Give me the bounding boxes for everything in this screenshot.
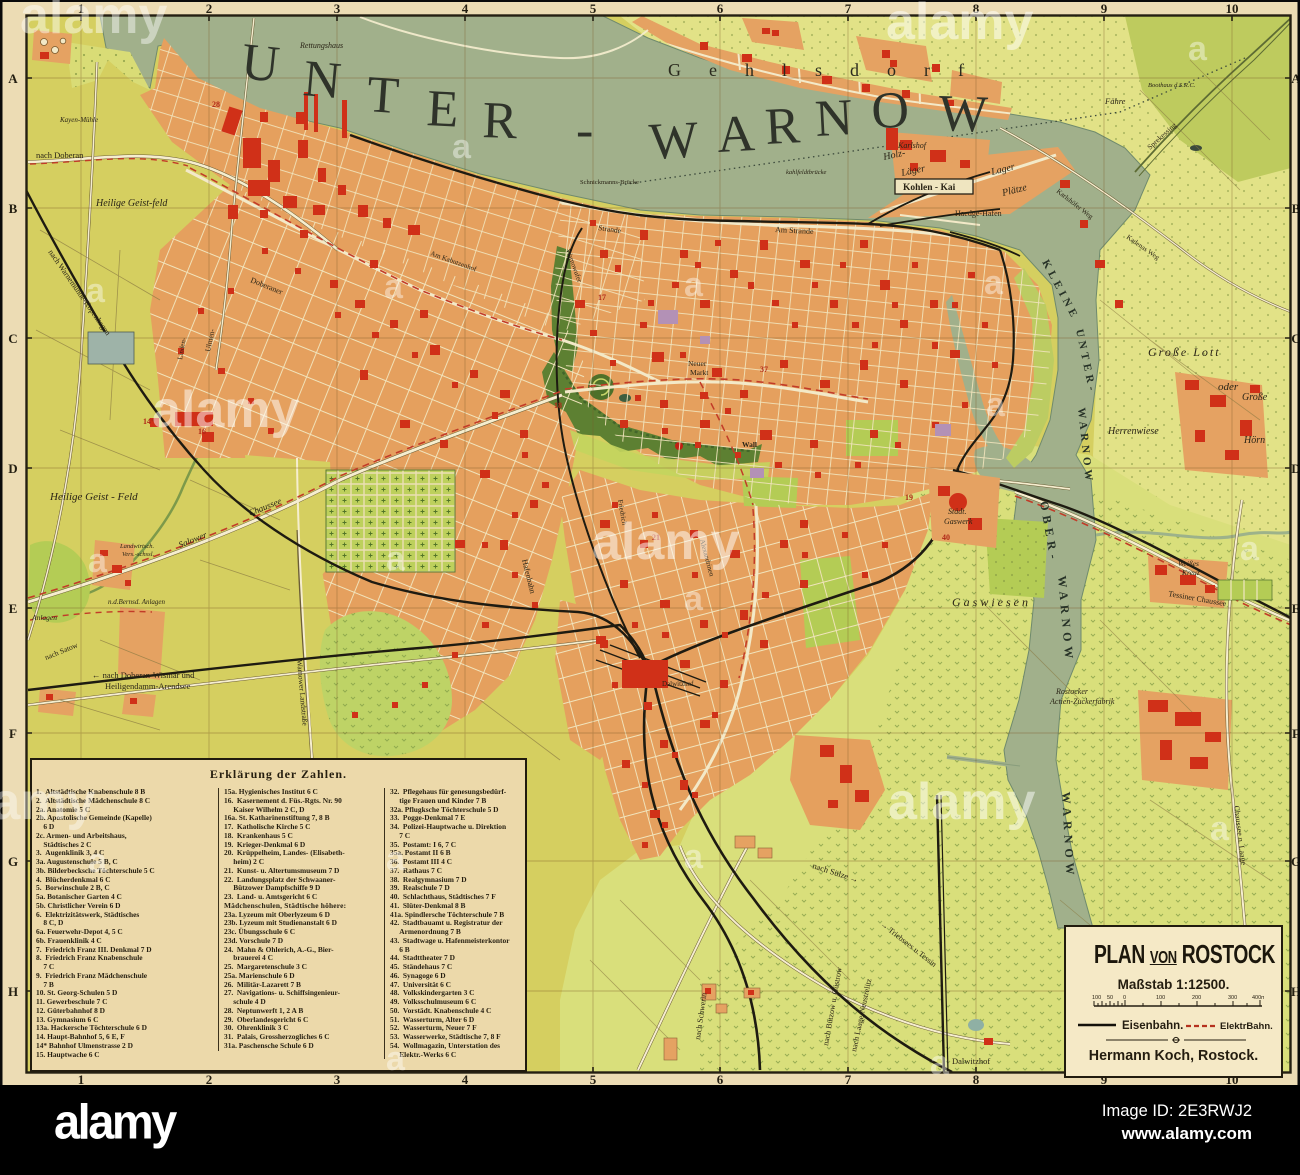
svg-text:50: 50 xyxy=(1107,995,1113,1001)
svg-text:18: 18 xyxy=(554,401,562,410)
svg-text:E: E xyxy=(425,80,460,139)
svg-text:100: 100 xyxy=(1156,995,1165,1001)
svg-text:2: 2 xyxy=(206,1,213,16)
svg-text:Dalwitzhof: Dalwitzhof xyxy=(952,1056,990,1066)
svg-text:9: 9 xyxy=(1101,1,1108,16)
svg-text:Actien-Zuckerfabrik: Actien-Zuckerfabrik xyxy=(1049,697,1115,706)
svg-text:Wall: Wall xyxy=(742,440,757,449)
svg-text:5: 5 xyxy=(590,1072,597,1085)
svg-text:Schnickmanns-Brücke: Schnickmanns-Brücke xyxy=(580,179,639,186)
svg-text:Vers.-schssl.: Vers.-schssl. xyxy=(122,551,155,558)
svg-text:Weißes: Weißes xyxy=(1178,559,1199,568)
svg-text:Rettungshaus: Rettungshaus xyxy=(299,41,343,50)
svg-text:Heilige Geist-feld: Heilige Geist-feld xyxy=(95,198,168,209)
svg-text:8: 8 xyxy=(973,1072,980,1085)
svg-text:3: 3 xyxy=(334,1,341,16)
svg-text:Gaswiesen: Gaswiesen xyxy=(952,595,1031,609)
svg-text:Große: Große xyxy=(1242,392,1268,403)
svg-text:1: 1 xyxy=(78,1072,85,1085)
svg-text:100: 100 xyxy=(1092,995,1101,1001)
svg-text:Neuer: Neuer xyxy=(688,359,707,368)
svg-text:200: 200 xyxy=(1192,995,1201,1001)
svg-text:37: 37 xyxy=(760,365,768,374)
svg-text:W: W xyxy=(938,85,989,144)
svg-text:28: 28 xyxy=(212,100,220,109)
svg-text:T: T xyxy=(365,66,401,125)
svg-text:6: 6 xyxy=(717,1072,724,1085)
svg-text:n.d.Bernsd. Anlagen: n.d.Bernsd. Anlagen xyxy=(108,598,166,606)
svg-text:21: 21 xyxy=(652,533,660,542)
svg-text:E: E xyxy=(9,601,18,616)
svg-text:Städt.: Städt. xyxy=(948,507,966,516)
svg-text:C: C xyxy=(8,331,17,346)
svg-text:D: D xyxy=(8,461,17,476)
svg-text:A: A xyxy=(8,71,18,86)
svg-text:Kohlen - Kai: Kohlen - Kai xyxy=(903,183,956,193)
svg-text:Haedge-Hafen: Haedge-Hafen xyxy=(955,209,1002,218)
svg-text:U: U xyxy=(239,33,282,94)
svg-text:10: 10 xyxy=(1226,1,1239,16)
svg-text:Landwirtsch.: Landwirtsch. xyxy=(119,543,155,550)
svg-text:Heilige Geist - Feld: Heilige Geist - Feld xyxy=(49,491,138,503)
svg-text:O: O xyxy=(870,82,910,140)
svg-text:7: 7 xyxy=(845,1072,852,1085)
svg-text:5: 5 xyxy=(590,1,597,16)
svg-text:G: G xyxy=(8,854,18,869)
svg-text:-: - xyxy=(576,102,593,159)
svg-text:F: F xyxy=(9,726,17,741)
svg-text:4: 4 xyxy=(462,1072,469,1085)
svg-text:Große Lott: Große Lott xyxy=(1148,345,1221,359)
svg-text:← nach Doberan-Wismar und: ← nach Doberan-Wismar und xyxy=(92,670,195,680)
svg-text:Herrenwiese: Herrenwiese xyxy=(1107,426,1159,437)
svg-text:Eisenbahn.: Eisenbahn. xyxy=(1122,1020,1183,1032)
svg-text:300: 300 xyxy=(1228,995,1237,1001)
svg-text:A: A xyxy=(716,105,757,164)
svg-text:400m: 400m xyxy=(1252,995,1264,1001)
svg-text:Boothaus d.S.R.C.: Boothaus d.S.R.C. xyxy=(1148,82,1196,89)
svg-text:Anlagen: Anlagen xyxy=(31,613,57,622)
svg-text:N: N xyxy=(814,89,854,148)
svg-text:nach Doberan: nach Doberan xyxy=(36,150,84,160)
svg-text:Hörn: Hörn xyxy=(1243,435,1265,446)
svg-text:1: 1 xyxy=(78,1,85,16)
svg-text:Rostocker: Rostocker xyxy=(1055,687,1089,696)
svg-text:Gaswerk: Gaswerk xyxy=(944,517,973,526)
svg-text:14*: 14* xyxy=(143,417,155,426)
svg-text:N: N xyxy=(301,50,343,110)
svg-text:19: 19 xyxy=(905,493,913,502)
svg-text:Kayen-Mühle: Kayen-Mühle xyxy=(59,116,98,124)
svg-text:17: 17 xyxy=(598,293,606,302)
svg-text:16: 16 xyxy=(198,427,206,436)
svg-text:2: 2 xyxy=(206,1072,213,1085)
svg-text:B: B xyxy=(9,201,18,216)
svg-text:H: H xyxy=(8,984,18,999)
svg-text:Fähre: Fähre xyxy=(1104,96,1126,106)
svg-text:Dalwitzhof: Dalwitzhof xyxy=(662,680,694,688)
svg-text:R: R xyxy=(764,97,802,156)
svg-text:Karlshof: Karlshof xyxy=(897,141,928,150)
svg-text:kahlfeldtbrücke: kahlfeldtbrücke xyxy=(786,169,827,176)
svg-text:4: 4 xyxy=(462,1,469,16)
svg-text:W: W xyxy=(648,111,700,170)
svg-text:ElektrBahn.: ElektrBahn. xyxy=(1220,1021,1273,1032)
svg-text:Markt: Markt xyxy=(690,368,709,377)
svg-text:oder: oder xyxy=(1218,381,1239,393)
svg-text:6: 6 xyxy=(717,1,724,16)
svg-text:40: 40 xyxy=(942,533,950,542)
svg-text:3: 3 xyxy=(334,1072,341,1085)
svg-text:Gehlsdorf: Gehlsdorf xyxy=(668,60,992,80)
svg-text:7: 7 xyxy=(845,1,852,16)
svg-text:Heiligendamm-Arendsee: Heiligendamm-Arendsee xyxy=(105,681,191,691)
svg-text:8: 8 xyxy=(973,1,980,16)
svg-text:Kreuz: Kreuz xyxy=(1181,568,1200,577)
svg-text:R: R xyxy=(482,92,519,150)
